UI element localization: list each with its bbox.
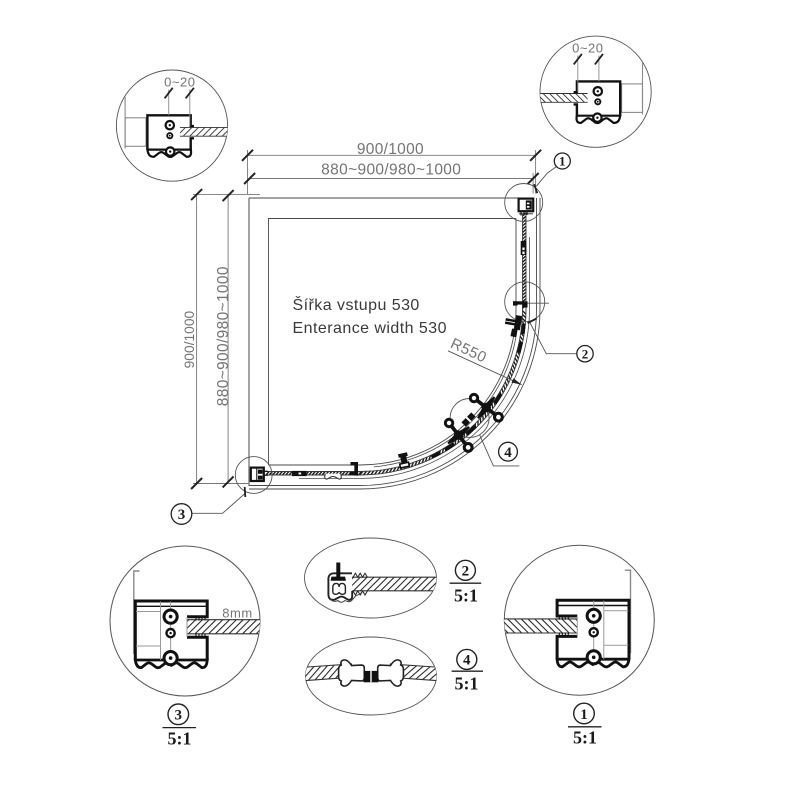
svg-text:5:1: 5:1 bbox=[573, 728, 597, 748]
svg-text:1: 1 bbox=[559, 154, 566, 169]
svg-text:4: 4 bbox=[463, 653, 471, 669]
svg-text:4: 4 bbox=[504, 445, 512, 461]
svg-text:3: 3 bbox=[178, 507, 186, 523]
svg-text:8mm: 8mm bbox=[222, 606, 252, 621]
svg-text:900/1000: 900/1000 bbox=[357, 141, 424, 158]
svg-text:1: 1 bbox=[580, 707, 588, 723]
svg-text:880~900/980~1000: 880~900/980~1000 bbox=[215, 266, 232, 406]
svg-text:5:1: 5:1 bbox=[168, 729, 192, 749]
svg-text:5:1: 5:1 bbox=[454, 586, 478, 606]
svg-text:900/1000: 900/1000 bbox=[182, 311, 197, 369]
svg-text:2: 2 bbox=[462, 564, 470, 580]
svg-text:0~20: 0~20 bbox=[164, 75, 195, 90]
svg-text:Šířka vstupu 530: Šířka vstupu 530 bbox=[293, 295, 420, 314]
svg-text:880~900/980~1000: 880~900/980~1000 bbox=[321, 162, 461, 179]
svg-text:0~20: 0~20 bbox=[572, 41, 603, 56]
svg-text:3: 3 bbox=[175, 708, 183, 724]
svg-text:2: 2 bbox=[582, 347, 589, 362]
svg-text:Enterance width 530: Enterance width 530 bbox=[293, 320, 447, 337]
svg-text:5:1: 5:1 bbox=[455, 674, 479, 694]
